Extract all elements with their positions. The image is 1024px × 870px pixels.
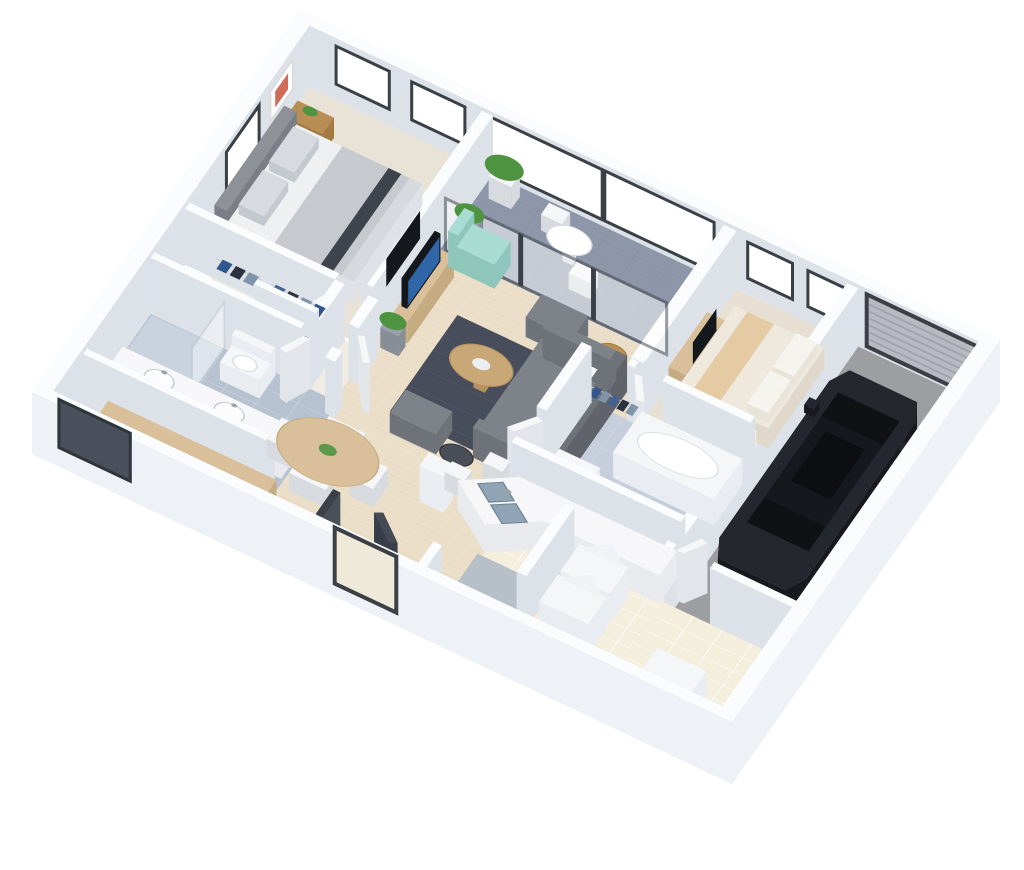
floorplan-svg [0,0,1024,870]
floorplan-3d-render [0,0,1024,870]
sliding-door-mullion-1 [518,233,523,287]
sliding-door-mullion-2 [591,267,596,321]
balcony-window-mullion [601,169,607,222]
hallway-wall-2 [325,347,342,418]
